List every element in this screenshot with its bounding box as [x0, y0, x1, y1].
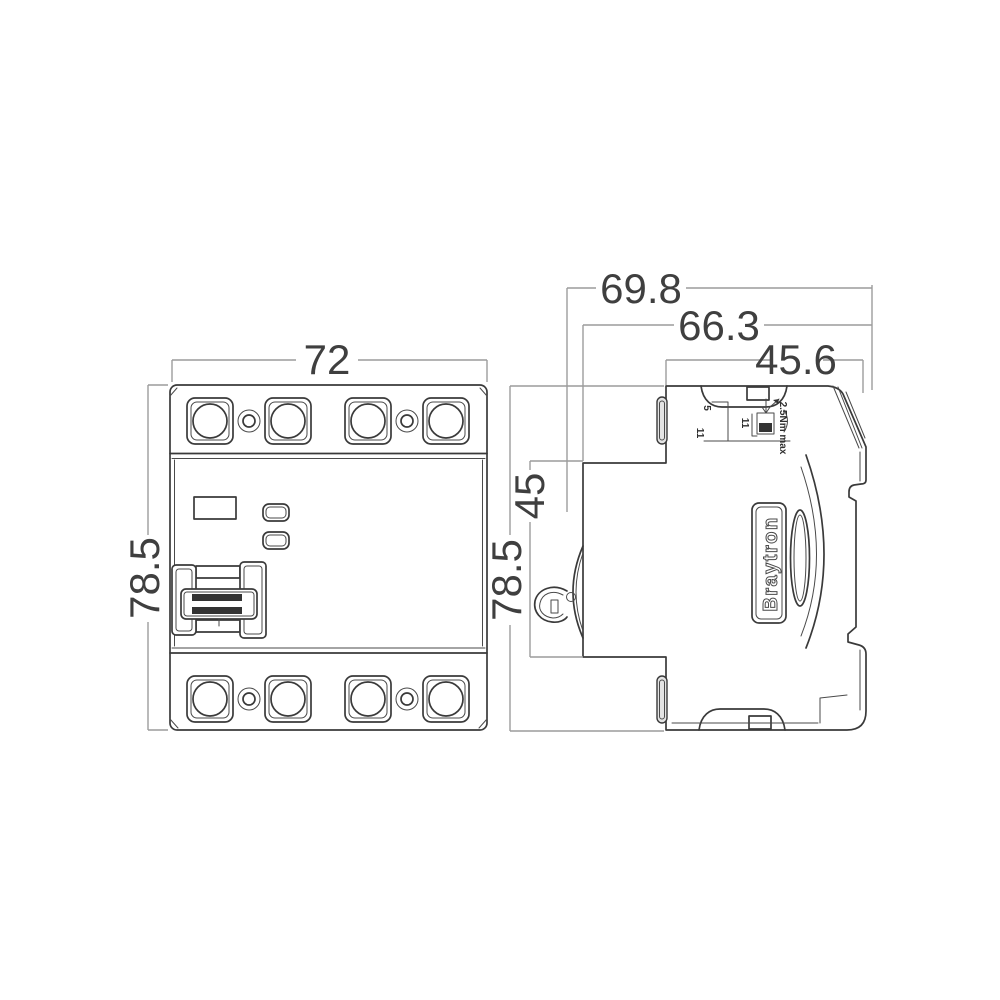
lever-grip-stripe	[192, 594, 242, 601]
strip-length-left-label: 11	[694, 428, 705, 439]
side-terminal-screw-top	[657, 397, 667, 444]
side-terminal-screw-bottom	[657, 676, 667, 723]
dimension-label: 66.3	[678, 302, 760, 349]
clip-notch	[551, 600, 558, 613]
dimension-label: 72	[304, 336, 351, 383]
terminal-depth-label: 11	[739, 418, 750, 429]
side-view: Braytron 5 11 11 2.5Nm max	[535, 386, 866, 730]
technical-drawing-canvas: Braytron 5 11 11 2.5Nm max 72 78.5	[0, 0, 1000, 1000]
dimension-label: 69.8	[600, 265, 682, 312]
dimension-label: 45	[506, 473, 553, 520]
dimension-label: 45.6	[755, 336, 837, 383]
dimension-72: 72	[172, 336, 487, 383]
lever-grip-stripe	[192, 607, 242, 614]
brand-label-text: Braytron	[760, 516, 782, 611]
torque-note-label: 2.5Nm max	[777, 402, 788, 455]
front-view	[170, 385, 487, 730]
dimension-front-78-5: 78.5	[121, 385, 168, 730]
strip-length-top-label: 5	[701, 405, 712, 411]
din-rail-clip	[535, 546, 583, 638]
dimension-label: 78.5	[483, 539, 530, 621]
dimension-label: 78.5	[121, 537, 168, 619]
clip-pin	[567, 593, 576, 602]
lever-handle	[181, 589, 257, 619]
